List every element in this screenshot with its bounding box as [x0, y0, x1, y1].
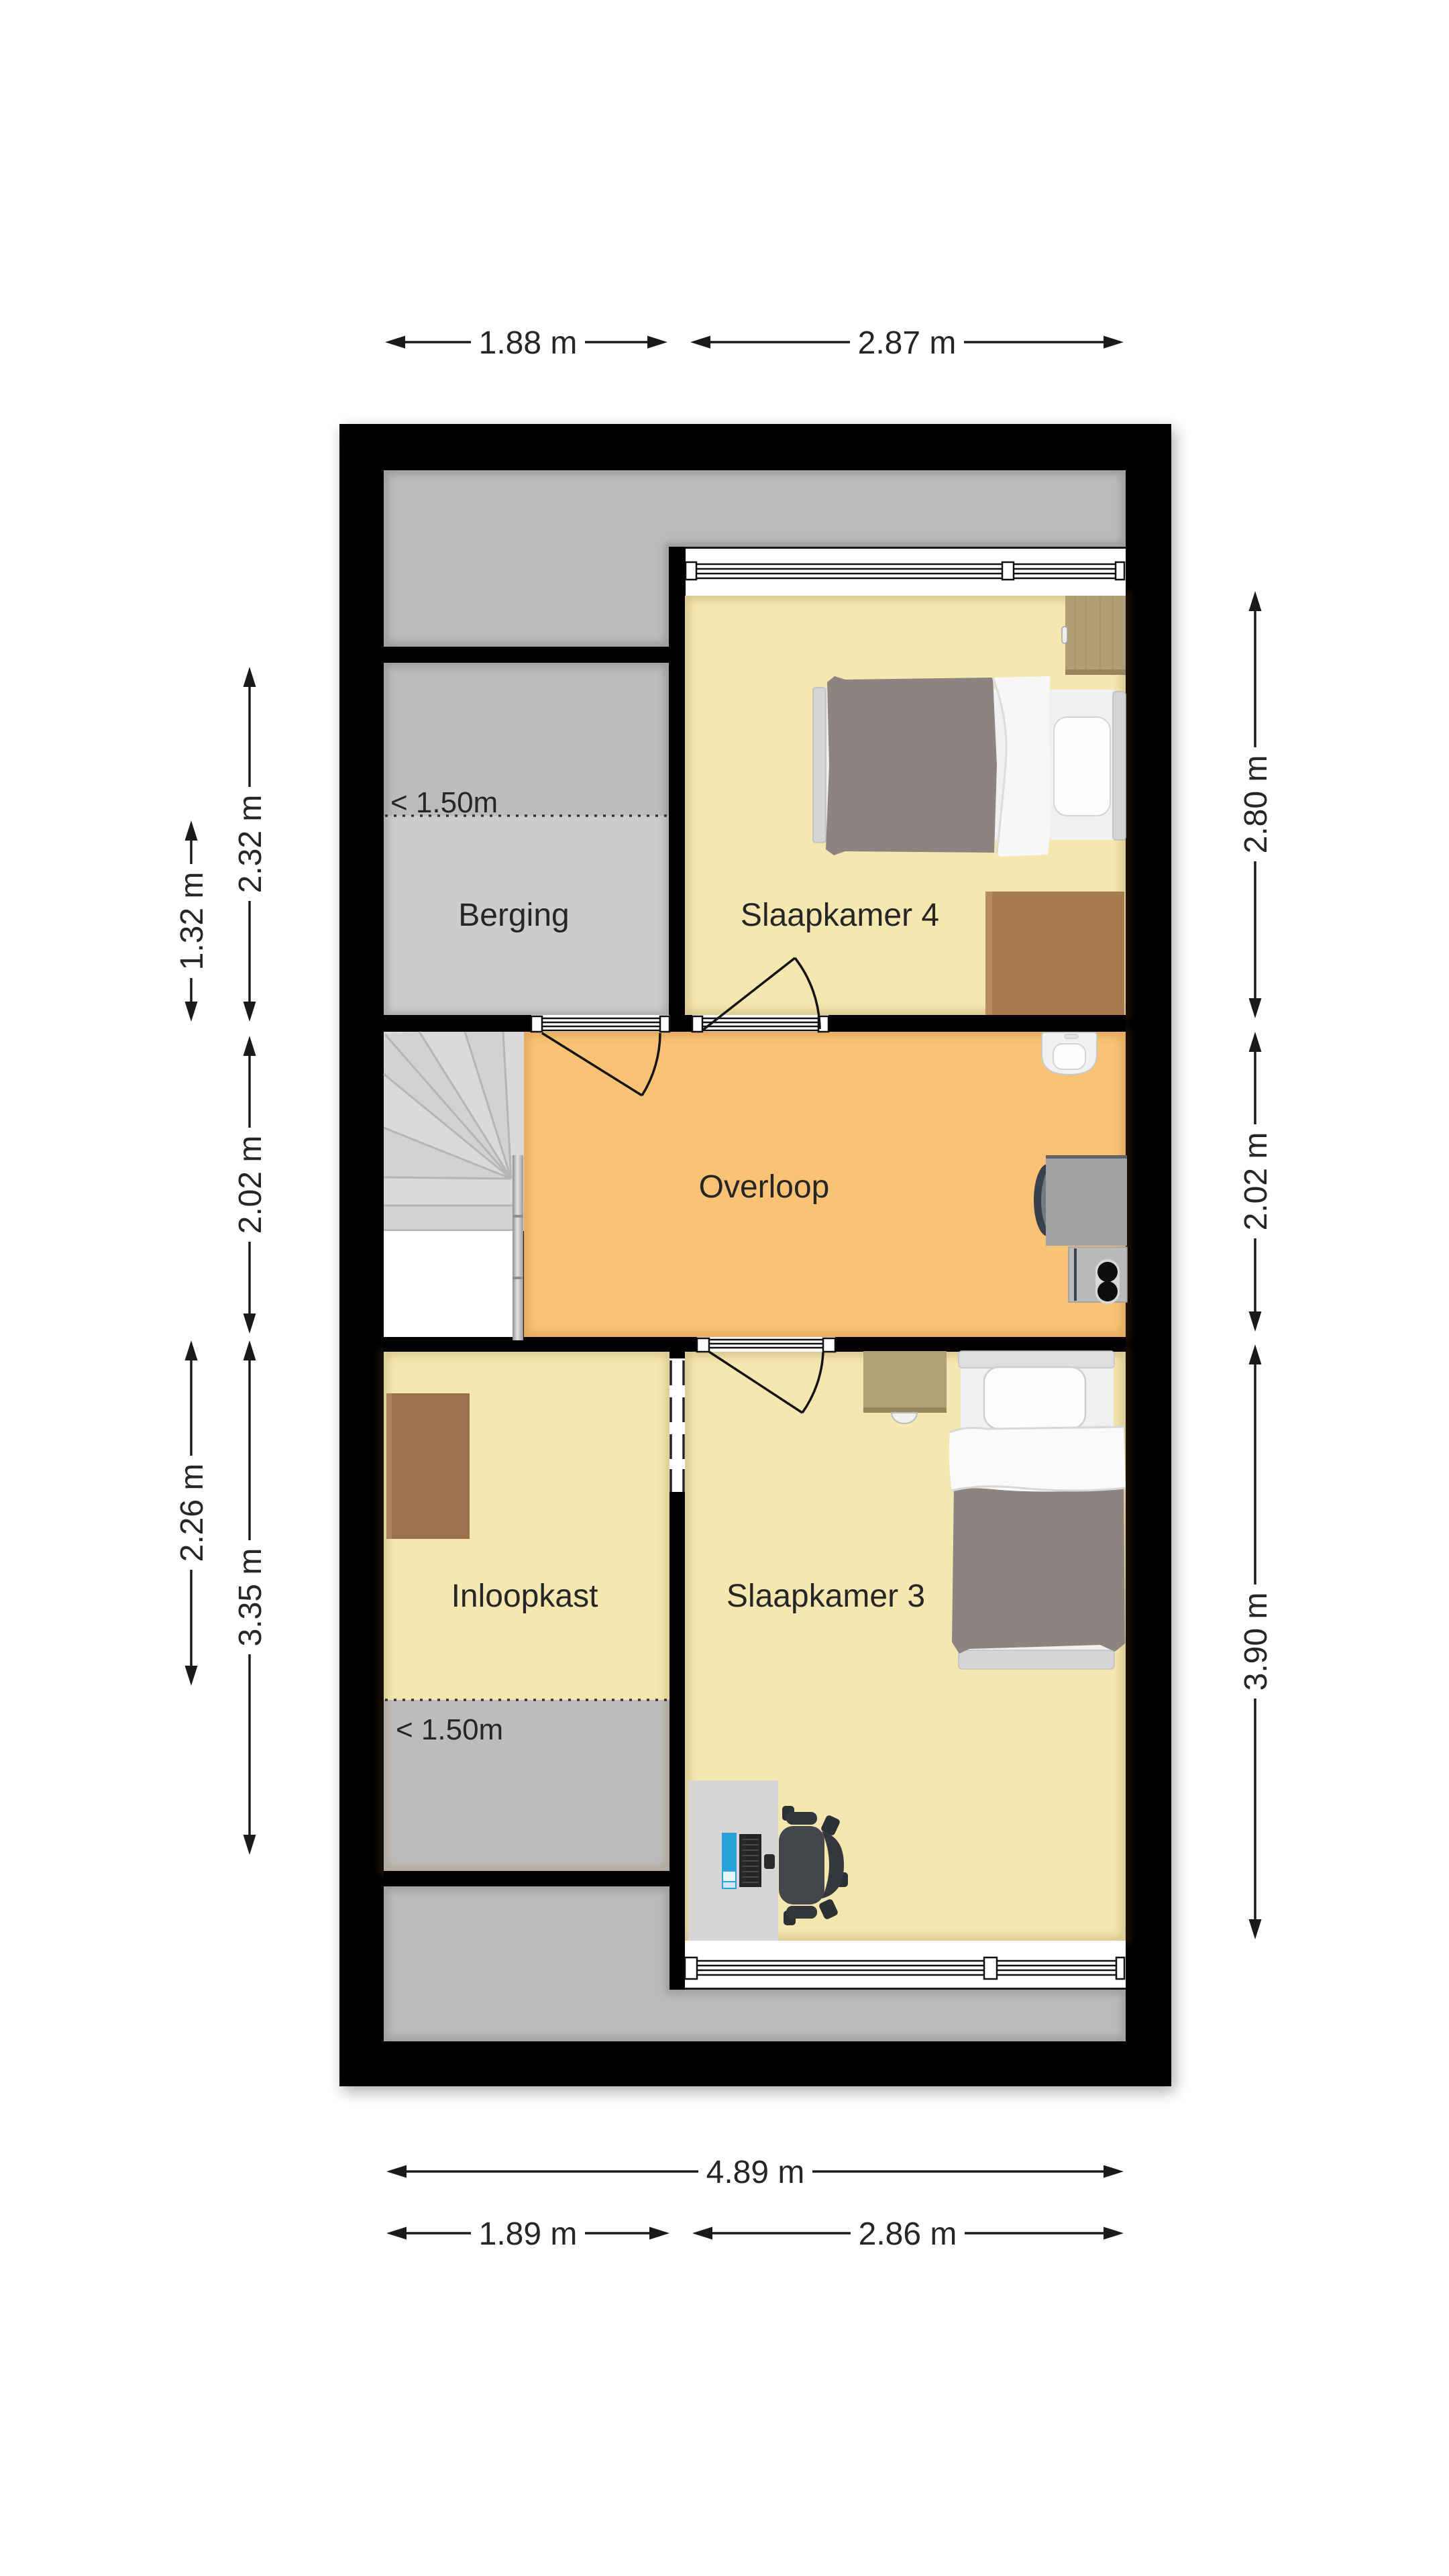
- svg-text:3.90 m: 3.90 m: [1238, 1593, 1274, 1691]
- svg-text:4.89 m: 4.89 m: [706, 2155, 805, 2190]
- svg-text:Berging: Berging: [458, 898, 569, 933]
- svg-text:3.35 m: 3.35 m: [233, 1548, 268, 1647]
- svg-text:2.86 m: 2.86 m: [859, 2216, 957, 2252]
- svg-text:1.88 m: 1.88 m: [479, 325, 578, 361]
- svg-text:2.80 m: 2.80 m: [1238, 755, 1274, 854]
- svg-text:2.02 m: 2.02 m: [233, 1136, 268, 1234]
- svg-text:Slaapkamer 4: Slaapkamer 4: [741, 898, 939, 933]
- svg-text:2.26 m: 2.26 m: [174, 1464, 210, 1562]
- svg-text:< 1.50m: < 1.50m: [396, 1713, 503, 1746]
- svg-text:1.89 m: 1.89 m: [479, 2216, 578, 2252]
- svg-text:Overloop: Overloop: [699, 1169, 830, 1205]
- svg-text:1.32 m: 1.32 m: [174, 872, 210, 971]
- svg-text:2.87 m: 2.87 m: [858, 325, 957, 361]
- svg-text:< 1.50m: < 1.50m: [390, 786, 498, 819]
- svg-text:2.32 m: 2.32 m: [233, 795, 268, 894]
- svg-text:2.02 m: 2.02 m: [1238, 1132, 1274, 1231]
- svg-text:Slaapkamer 3: Slaapkamer 3: [727, 1578, 925, 1614]
- svg-text:Inloopkast: Inloopkast: [451, 1578, 598, 1614]
